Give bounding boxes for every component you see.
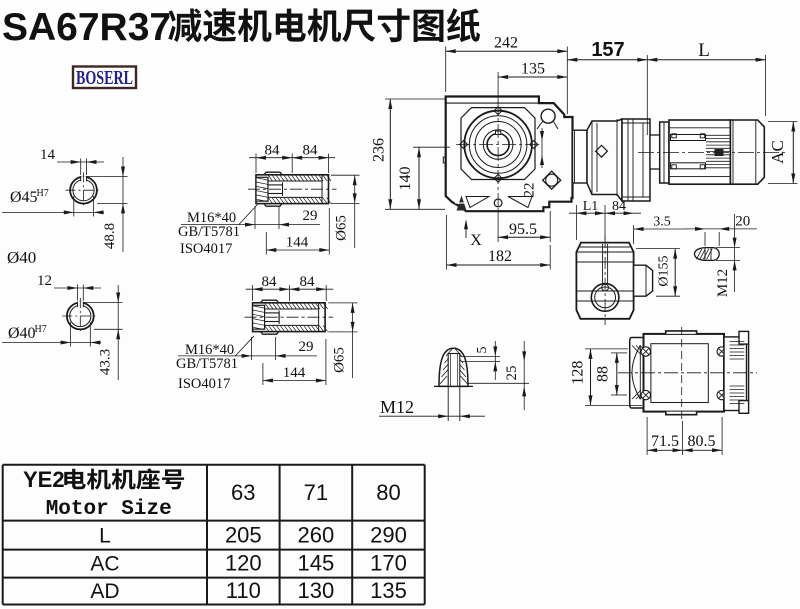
- svg-text:157: 157: [591, 39, 624, 61]
- svg-text:Ø65: Ø65: [334, 215, 350, 241]
- svg-text:84: 84: [262, 274, 278, 290]
- svg-text:12: 12: [37, 273, 52, 289]
- svg-text:AD: AD: [90, 580, 119, 603]
- svg-text:Ø40: Ø40: [8, 325, 36, 342]
- svg-text:260: 260: [298, 523, 335, 548]
- svg-text:135: 135: [521, 61, 545, 78]
- svg-text:X: X: [470, 232, 482, 249]
- svg-text:3.5: 3.5: [653, 215, 671, 230]
- svg-text:AC: AC: [90, 553, 119, 576]
- svg-text:Motor Size: Motor Size: [46, 498, 172, 521]
- svg-text:29: 29: [303, 208, 318, 224]
- svg-text:L1: L1: [583, 199, 599, 214]
- svg-text:Ø155: Ø155: [657, 255, 672, 286]
- svg-text:128: 128: [570, 361, 587, 385]
- svg-text:M12: M12: [715, 269, 731, 297]
- svg-text:63: 63: [231, 480, 255, 505]
- svg-text:H7: H7: [35, 324, 47, 335]
- svg-text:95.5: 95.5: [509, 221, 537, 238]
- svg-text:5: 5: [475, 347, 490, 354]
- svg-text:14: 14: [40, 147, 56, 163]
- svg-text:144: 144: [286, 235, 309, 251]
- svg-text:242: 242: [494, 35, 518, 52]
- svg-text:130: 130: [298, 578, 335, 603]
- svg-text:290: 290: [370, 523, 407, 548]
- svg-text:120: 120: [225, 551, 262, 576]
- svg-text:88: 88: [595, 366, 612, 382]
- svg-text:Ø65: Ø65: [331, 347, 347, 373]
- svg-text:48.8: 48.8: [102, 223, 118, 249]
- svg-text:170: 170: [370, 551, 407, 576]
- svg-text:182: 182: [488, 248, 512, 265]
- svg-text:84: 84: [612, 199, 626, 214]
- svg-text:25: 25: [504, 366, 520, 381]
- svg-text:135: 135: [370, 578, 407, 603]
- svg-text:84: 84: [300, 274, 316, 290]
- svg-text:GB/T5781: GB/T5781: [178, 224, 240, 240]
- svg-text:GB/T5781: GB/T5781: [176, 356, 238, 372]
- svg-text:L: L: [698, 40, 710, 61]
- svg-text:84: 84: [303, 143, 319, 159]
- svg-text:Ø45: Ø45: [10, 189, 38, 206]
- svg-text:144: 144: [283, 365, 306, 381]
- svg-text:205: 205: [225, 523, 262, 548]
- svg-text:22: 22: [522, 183, 538, 198]
- svg-text:L: L: [99, 525, 111, 548]
- svg-text:ISO4017: ISO4017: [180, 241, 232, 257]
- svg-text:YE2: YE2: [23, 467, 65, 492]
- svg-text:AC: AC: [768, 140, 787, 164]
- svg-text:236: 236: [370, 138, 387, 162]
- svg-text:29: 29: [299, 339, 314, 355]
- svg-text:71: 71: [304, 480, 328, 505]
- svg-text:145: 145: [298, 551, 335, 576]
- svg-text:SA67R37: SA67R37: [2, 6, 171, 49]
- svg-text:BOSERL: BOSERL: [76, 68, 133, 89]
- svg-text:Ø40: Ø40: [7, 248, 36, 267]
- svg-text:80.5: 80.5: [688, 433, 716, 450]
- svg-text:110: 110: [226, 578, 261, 603]
- svg-text:140: 140: [397, 167, 414, 191]
- svg-text:ISO4017: ISO4017: [178, 376, 230, 392]
- svg-text:H7: H7: [37, 188, 49, 199]
- svg-text:20: 20: [735, 214, 750, 230]
- svg-text:43.3: 43.3: [98, 349, 114, 375]
- svg-text:71.5: 71.5: [651, 433, 679, 450]
- svg-text:84: 84: [265, 143, 281, 159]
- svg-text:M12: M12: [380, 397, 414, 417]
- svg-text:80: 80: [376, 480, 400, 505]
